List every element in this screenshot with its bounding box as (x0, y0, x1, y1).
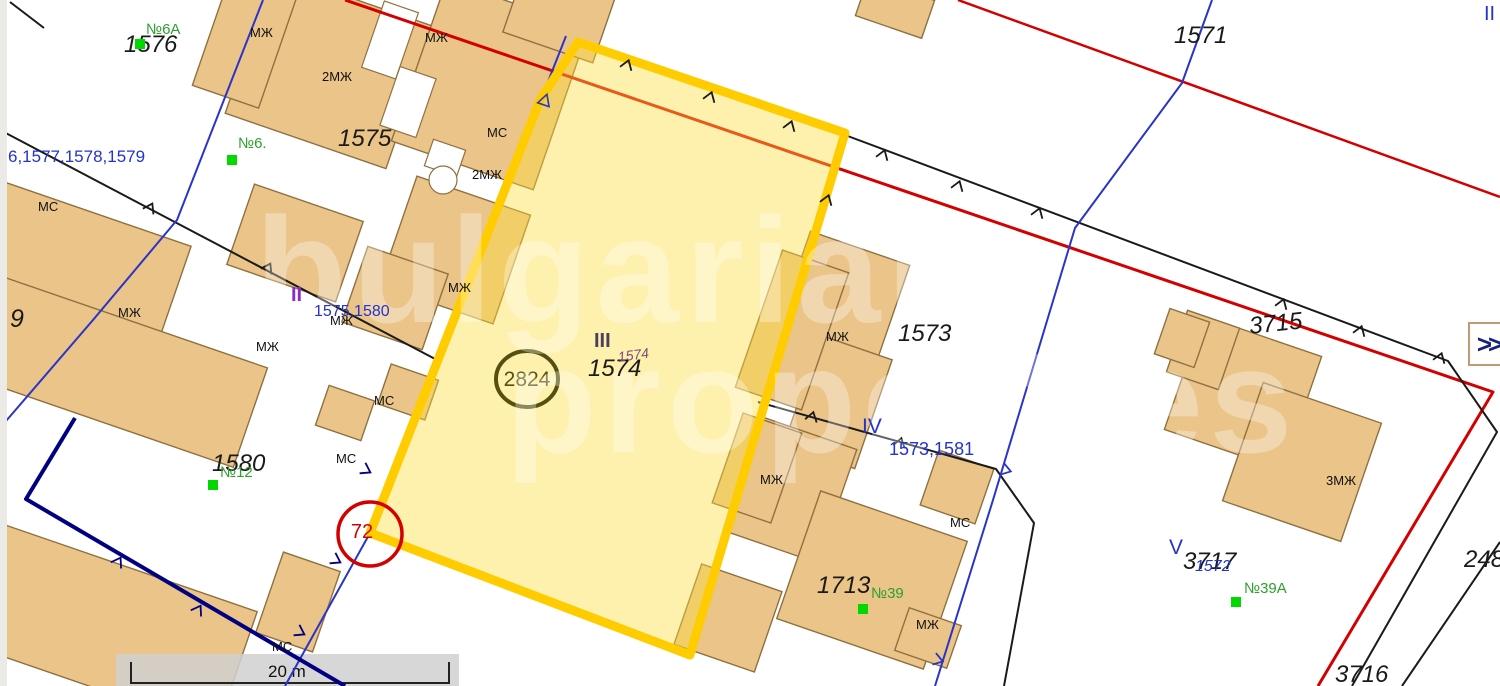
double-chevron-right-icon: >> (1477, 329, 1499, 360)
boundary-line-black (1402, 542, 1500, 686)
circle-annotation-label: 72 (351, 521, 373, 543)
building-cutout (429, 166, 457, 194)
map-viewport[interactable]: 20 m282472 bulgarian properties 15761575… (0, 0, 1500, 686)
building (256, 552, 340, 652)
expand-panel-button[interactable]: >> (1468, 322, 1500, 366)
survey-tick (360, 463, 374, 478)
survey-tick (951, 179, 965, 191)
boundary-line-black (10, 2, 44, 28)
building (920, 450, 994, 524)
building (315, 385, 374, 440)
survey-tick (330, 553, 344, 568)
boundary-line-red (958, 0, 1500, 197)
circle-annotation-label: 2824 (504, 368, 551, 391)
scale-bar-label: 20 m (268, 662, 306, 681)
viewport-left-border (0, 0, 7, 686)
building (855, 0, 934, 38)
cadastral-map-svg: 20 m282472 (0, 0, 1500, 686)
